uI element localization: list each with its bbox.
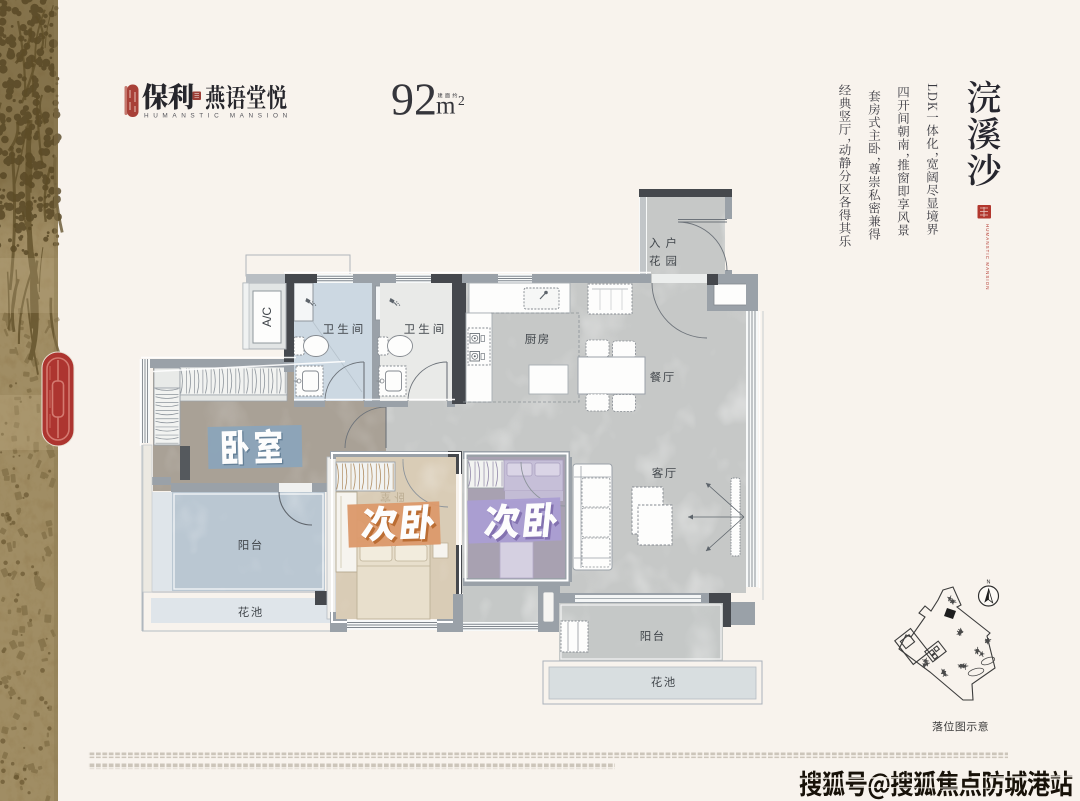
svg-text:HUMANSTIC MANSION: HUMANSTIC MANSION bbox=[985, 224, 990, 291]
svg-text:A/C: A/C bbox=[260, 307, 274, 327]
svg-text:2: 2 bbox=[458, 93, 465, 108]
svg-text:N: N bbox=[987, 580, 991, 586]
svg-text:HUMANSTIC MANSION: HUMANSTIC MANSION bbox=[144, 113, 292, 120]
svg-text:m: m bbox=[436, 93, 456, 120]
svg-text:92: 92 bbox=[391, 74, 437, 125]
